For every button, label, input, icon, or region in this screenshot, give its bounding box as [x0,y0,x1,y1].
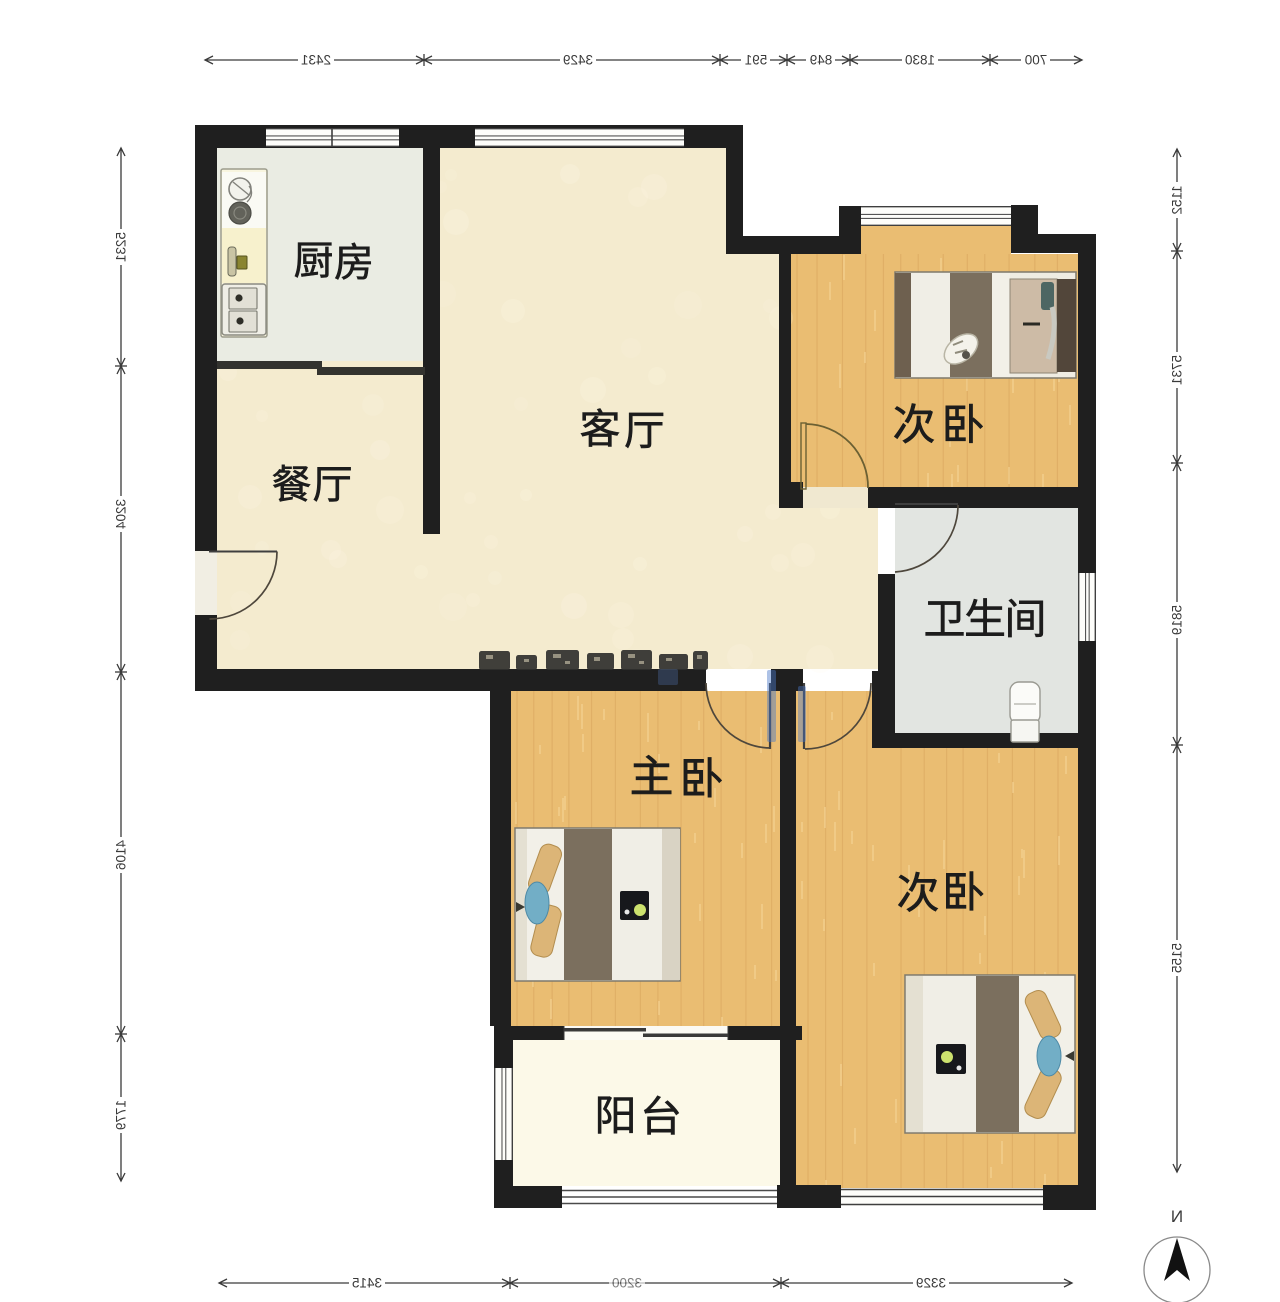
svg-text:4106: 4106 [114,840,129,870]
svg-text:N: N [1171,1207,1183,1226]
svg-text:3429: 3429 [563,53,593,68]
svg-text:1779: 1779 [114,1100,129,1130]
svg-text:3415: 3415 [352,1276,382,1291]
svg-text:5231: 5231 [114,232,129,262]
svg-text:591: 591 [745,53,768,68]
svg-text:3200: 3200 [612,1276,642,1291]
svg-text:849: 849 [810,53,833,68]
svg-text:5155: 5155 [1170,943,1185,973]
svg-text:1152: 1152 [1170,185,1185,214]
svg-text:700: 700 [1025,53,1048,68]
svg-text:2431: 2431 [301,53,331,68]
svg-text:5819: 5819 [1170,605,1185,635]
svg-text:5731: 5731 [1170,355,1185,385]
svg-text:3204: 3204 [114,499,129,530]
svg-text:1830: 1830 [905,53,935,68]
svg-text:3329: 3329 [916,1276,946,1291]
